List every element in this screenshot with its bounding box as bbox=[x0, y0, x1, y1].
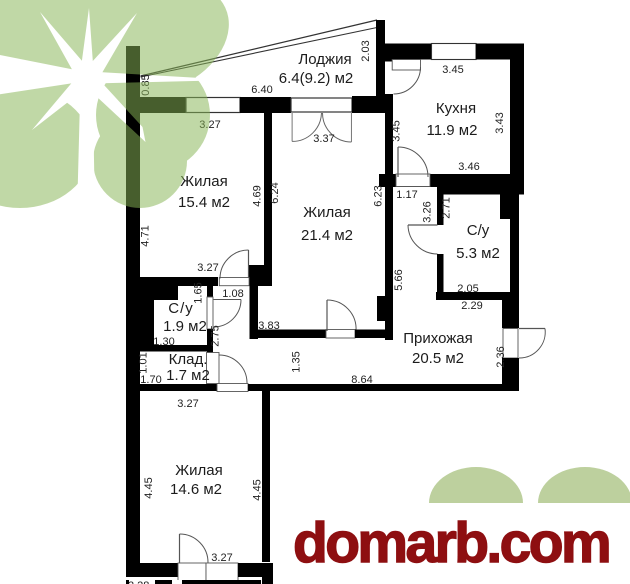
svg-text:Жилая: Жилая bbox=[303, 204, 350, 221]
svg-text:1.9 м2: 1.9 м2 bbox=[163, 318, 207, 335]
svg-text:3.26: 3.26 bbox=[422, 201, 434, 222]
svg-text:5.66: 5.66 bbox=[393, 269, 405, 290]
svg-text:1.01: 1.01 bbox=[138, 352, 150, 373]
svg-text:3.45: 3.45 bbox=[442, 64, 463, 76]
svg-text:3.37: 3.37 bbox=[313, 133, 334, 145]
svg-text:Лоджия: Лоджия bbox=[298, 51, 351, 68]
svg-text:3.83: 3.83 bbox=[258, 320, 279, 332]
svg-text:3.43: 3.43 bbox=[494, 112, 506, 133]
svg-text:С/у: С/у bbox=[467, 222, 490, 239]
svg-text:1.30: 1.30 bbox=[153, 336, 174, 348]
svg-text:4.45: 4.45 bbox=[143, 477, 155, 498]
svg-text:1.17: 1.17 bbox=[396, 189, 417, 201]
svg-text:11.9 м2: 11.9 м2 bbox=[427, 122, 478, 139]
svg-text:1.35: 1.35 bbox=[291, 351, 303, 372]
svg-text:6.23: 6.23 bbox=[373, 185, 385, 206]
svg-text:1.7 м2: 1.7 м2 bbox=[166, 367, 210, 384]
svg-text:2.71: 2.71 bbox=[441, 197, 453, 218]
svg-text:3.28: 3.28 bbox=[128, 580, 149, 584]
svg-text:2.05: 2.05 bbox=[457, 283, 478, 295]
svg-text:1.65: 1.65 bbox=[193, 282, 205, 303]
svg-text:8.64: 8.64 bbox=[351, 374, 372, 386]
svg-text:domarb.com: domarb.com bbox=[293, 511, 609, 575]
svg-text:2.29: 2.29 bbox=[461, 300, 482, 312]
svg-text:2.75: 2.75 bbox=[210, 325, 222, 346]
svg-text:3.27: 3.27 bbox=[177, 398, 198, 410]
svg-text:1.70: 1.70 bbox=[140, 374, 161, 386]
svg-text:Прихожая: Прихожая bbox=[403, 330, 473, 347]
svg-text:5.3 м2: 5.3 м2 bbox=[456, 245, 500, 262]
svg-text:20.5 м2: 20.5 м2 bbox=[412, 350, 464, 367]
svg-text:3.46: 3.46 bbox=[458, 161, 479, 173]
svg-text:21.4 м2: 21.4 м2 bbox=[301, 227, 353, 244]
svg-text:2.36: 2.36 bbox=[495, 346, 507, 367]
svg-text:С/у: С/у bbox=[168, 300, 194, 317]
svg-text:14.6 м2: 14.6 м2 bbox=[170, 481, 222, 498]
svg-text:3.45: 3.45 bbox=[391, 120, 403, 141]
svg-text:Жилая: Жилая bbox=[175, 462, 222, 479]
svg-text:1.08: 1.08 bbox=[222, 288, 243, 300]
svg-text:4.45: 4.45 bbox=[252, 479, 264, 500]
svg-text:Кухня: Кухня bbox=[436, 100, 476, 117]
svg-text:2.03: 2.03 bbox=[360, 40, 372, 61]
svg-text:Клад.: Клад. bbox=[169, 351, 208, 368]
svg-text:3.27: 3.27 bbox=[211, 552, 232, 564]
